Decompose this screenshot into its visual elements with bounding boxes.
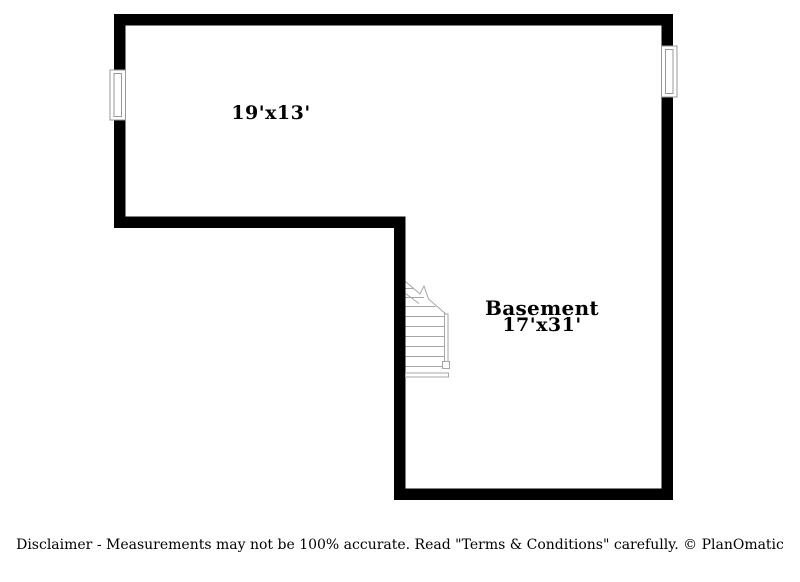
floor-plan-canvas: 19'x13' Basement 17'x31' Disclaimer - Me… bbox=[0, 0, 800, 582]
window-icon-left bbox=[110, 70, 126, 120]
disclaimer-text: Disclaimer - Measurements may not be 100… bbox=[0, 537, 800, 553]
floor-plan-drawing bbox=[0, 0, 800, 582]
staircase-icon bbox=[406, 282, 450, 378]
room-label-group: Basement 17'x31' bbox=[485, 300, 599, 334]
room-dimensions-label: 19'x13' bbox=[231, 102, 310, 124]
window-icon-right bbox=[662, 46, 678, 97]
walls bbox=[114, 14, 673, 500]
